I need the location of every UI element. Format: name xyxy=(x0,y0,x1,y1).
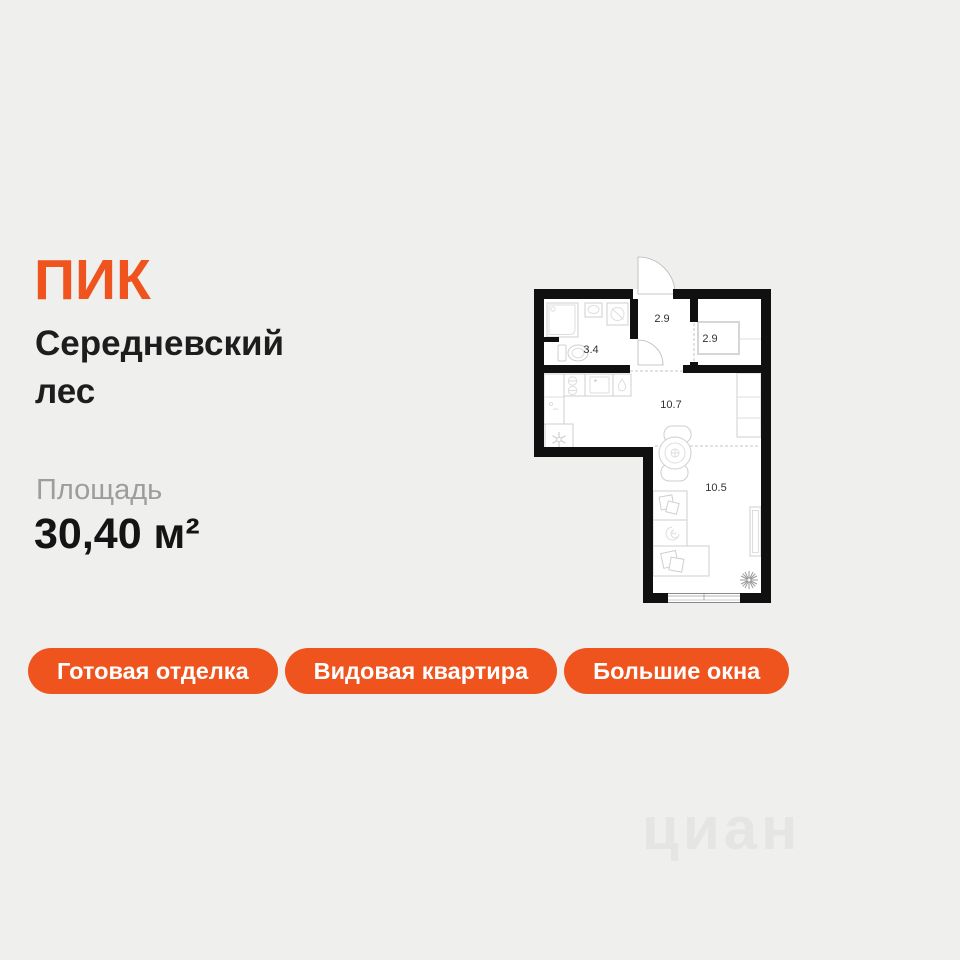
desk-icon xyxy=(653,491,687,520)
office-chair-icon xyxy=(653,520,687,546)
project-title: Середневский лес xyxy=(35,320,345,416)
floor-plan: 3.4 2.9 2.9 10.7 10.5 xyxy=(520,240,780,615)
kitchen-sink-icon xyxy=(585,374,613,396)
tag-finishing[interactable]: Готовая отделка xyxy=(28,648,278,694)
shelving-icon xyxy=(737,373,761,437)
pik-logo: ПИК xyxy=(34,252,151,309)
room-label-bathroom: 3.4 xyxy=(583,344,598,356)
bath-sink-icon xyxy=(585,303,602,317)
fridge-icon xyxy=(544,374,564,425)
area-value: 30,40 м² xyxy=(34,510,200,559)
room-label-wardrobe: 2.9 xyxy=(702,333,717,345)
plant-icon xyxy=(740,571,758,589)
tag-row: Готовая отделка Видовая квартира Большие… xyxy=(28,648,789,694)
dining-table-icon xyxy=(659,426,691,481)
listing-card: ПИК Середневский лес Площадь 30,40 м² Го… xyxy=(0,0,960,960)
room-label-living: 10.5 xyxy=(705,482,726,494)
tag-view-apartment[interactable]: Видовая квартира xyxy=(285,648,558,694)
cian-watermark: циан xyxy=(642,794,801,863)
room-label-kitchen: 10.7 xyxy=(660,399,681,411)
shower-icon xyxy=(547,303,578,337)
room-label-hallway: 2.9 xyxy=(654,313,669,325)
window-icon xyxy=(668,594,740,603)
kettle-icon xyxy=(613,374,631,396)
washing-machine-icon xyxy=(607,303,628,325)
tag-big-windows[interactable]: Большие окна xyxy=(564,648,789,694)
area-label: Площадь xyxy=(36,474,162,507)
radiator-icon xyxy=(750,507,761,556)
entrance-door-icon xyxy=(638,257,675,294)
stove-icon xyxy=(562,374,585,396)
bed-icon xyxy=(653,546,709,576)
